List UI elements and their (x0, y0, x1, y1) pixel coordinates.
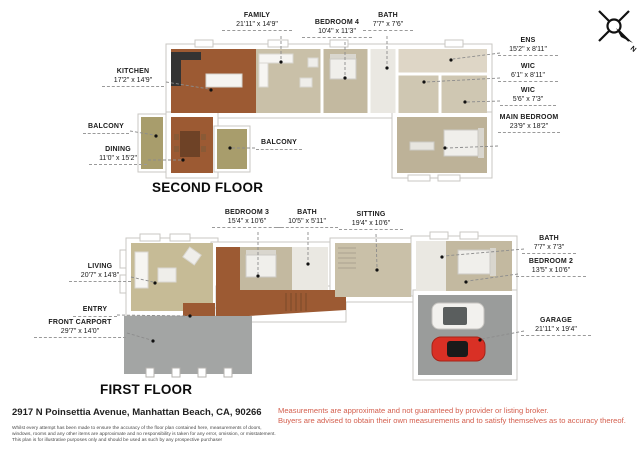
room-label-balcony-mid: BALCONY (256, 139, 302, 150)
room-label-front-carport: FRONT CARPORT 29'7" x 14'0" (34, 319, 126, 338)
compass-north-label: N (629, 45, 637, 54)
measurement-disclaimer: Measurements are approximate and not gua… (278, 406, 638, 425)
room-label-bedroom3: BEDROOM 3 15'4" x 10'6" (212, 209, 282, 228)
room-label-bedroom2: BEDROOM 2 13'5" x 10'6" (516, 258, 586, 277)
room-bath-right-floor (416, 241, 446, 291)
fine-print-disclaimer: Whilst every attempt has been made to en… (12, 426, 292, 443)
measurement-disclaimer-line-2: Buyers are advised to obtain their own m… (278, 416, 638, 426)
garage-car-red (432, 337, 485, 361)
room-label-balcony-left: BALCONY (83, 123, 129, 134)
room-label-bath-mid: BATH 10'5" x 5'11" (276, 209, 338, 228)
room-label-wic-1: WIC 6'1" x 8'11" (498, 63, 558, 82)
first-floor-plan (117, 232, 524, 380)
balcony-mid-floor (217, 129, 247, 169)
bedroom4-bed (330, 54, 356, 79)
room-label-living: LIVING 20'7" x 14'8" (69, 263, 131, 282)
fine-print-line-1: Whilst every attempt has been made to en… (12, 426, 292, 432)
second-floor-title: SECOND FLOOR (152, 180, 263, 195)
room-label-kitchen: KITCHEN 17'2" x 14'9" (102, 68, 164, 87)
bedroom3-bed (246, 250, 276, 277)
room-sitting-floor (335, 243, 411, 297)
room-label-dining: DINING 11'0" x 15'2" (89, 146, 147, 165)
room-label-wic-2: WIC 5'6" x 7'3" (500, 87, 556, 106)
room-label-bath-sf: BATH 7'7" x 7'6" (363, 12, 413, 31)
room-label-entry: ENTRY (73, 306, 117, 317)
room-label-garage: GARAGE 21'11" x 19'4" (521, 317, 591, 336)
garage-car-white (432, 303, 484, 329)
room-label-sitting: SITTING 19'4" x 10'6" (339, 211, 403, 230)
room-label-family: FAMILY 21'11" x 14'9" (222, 12, 292, 31)
room-label-bath-right: BATH 7'7" x 7'3" (522, 235, 576, 254)
compass-icon: N (599, 11, 637, 54)
room-bath-upper-floor (369, 49, 397, 113)
fine-print-line-3: This plan is for illustrative purposes o… (12, 438, 292, 444)
room-label-bedroom4: BEDROOM 4 10'4" x 11'3" (302, 19, 372, 38)
room-label-main-bedroom: MAIN BEDROOM 23'9" x 18'2" (498, 114, 560, 133)
measurement-disclaimer-line-1: Measurements are approximate and not gua… (278, 406, 638, 416)
carport-floor (124, 316, 252, 374)
property-address: 2917 N Poinsettia Avenue, Manhattan Beac… (12, 407, 262, 418)
room-ensuite-floor (397, 49, 487, 74)
floor-plan-page: N FAMILY 21'11" x 14'9" BEDROOM 4 10'4" … (0, 0, 640, 452)
second-floor-plan (130, 36, 500, 181)
bedroom2-bed (458, 248, 496, 276)
room-bath-mid-floor (292, 247, 328, 297)
room-label-ensuite: ENS 15'2" x 8'11" (498, 37, 558, 56)
first-floor-title: FIRST FLOOR (100, 382, 192, 397)
fine-print-line-2: windows, rooms and any other items are a… (12, 432, 292, 438)
